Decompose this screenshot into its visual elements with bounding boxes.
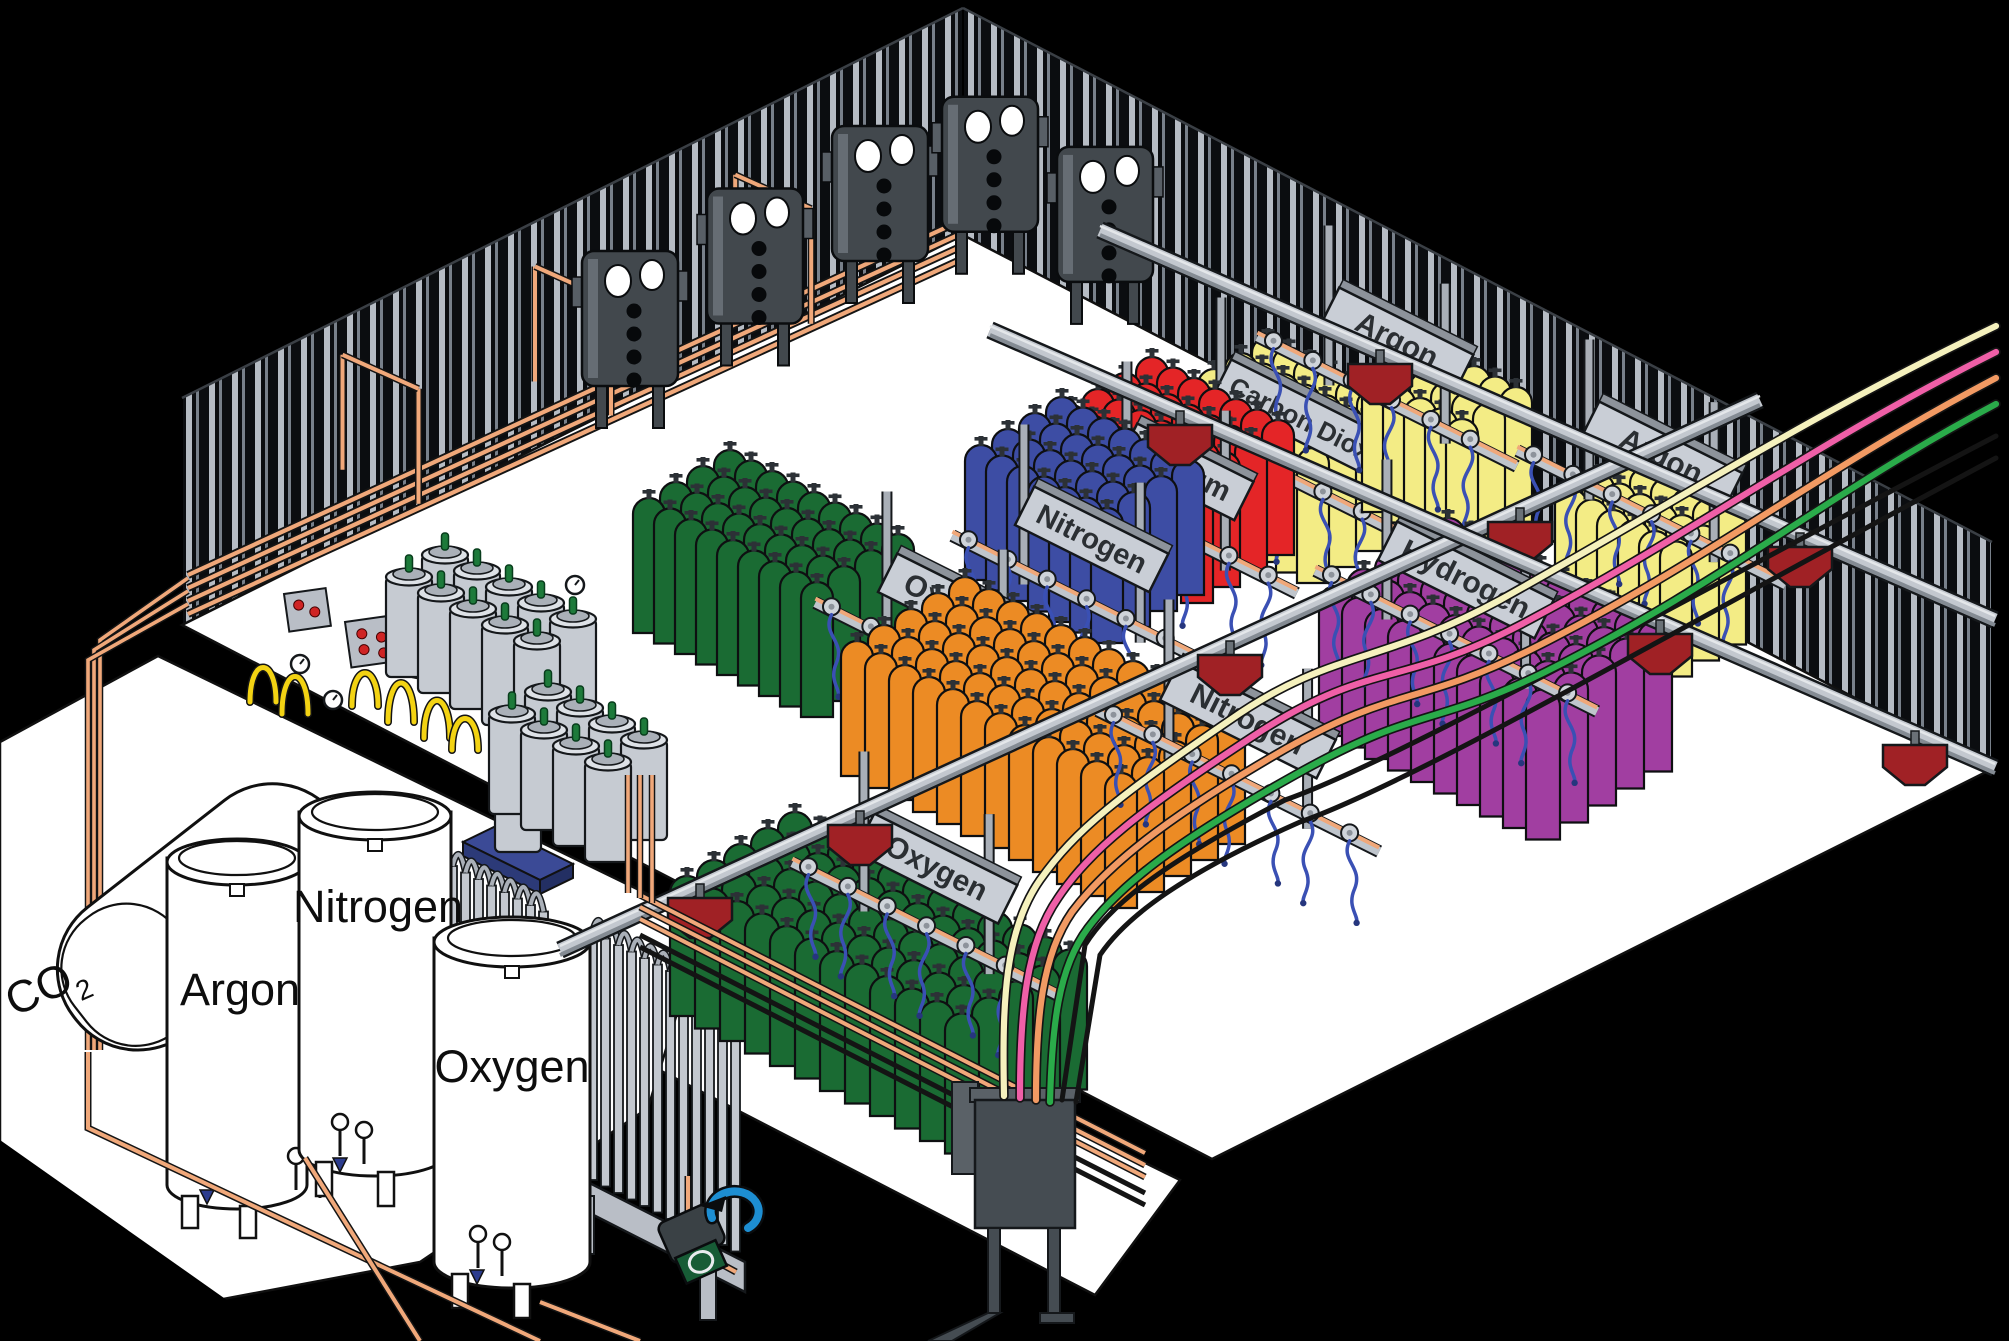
oxygen-storage-tank: Oxygen [434, 917, 590, 1318]
plant-scene: CO2 Argon [0, 0, 2009, 1341]
oxygen-tank-label: Oxygen [434, 1041, 589, 1092]
argon-tank-label: Argon [180, 964, 300, 1015]
gas-filling-plant-illustration: CO2 Argon [0, 0, 2009, 1341]
nitrogen-tank-label: Nitrogen [293, 881, 463, 932]
